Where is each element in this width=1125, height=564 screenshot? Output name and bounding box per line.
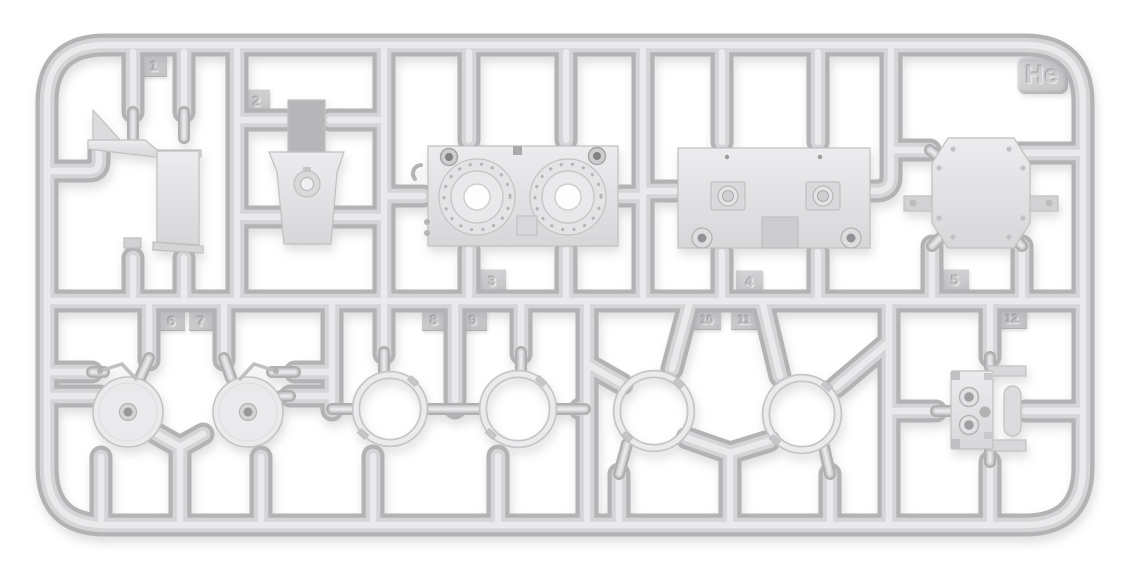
hatch-latch-left (904, 196, 932, 211)
part-10-tire-ring (617, 374, 691, 448)
hatch-ring-left (439, 159, 515, 235)
boss-left (711, 182, 745, 210)
runner-grid (47, 45, 1083, 525)
part-8-tire-ring (356, 375, 424, 443)
hatch-latch-right (1030, 196, 1058, 211)
sprue-frame-graphic (0, 0, 1125, 564)
part-9-tire-ring (483, 374, 553, 444)
part-12-bracket (951, 366, 1026, 451)
part-11-tire-ring (766, 378, 838, 450)
boss-right (806, 182, 840, 210)
hatch-ring-right (530, 159, 606, 235)
part-3-twin-hatch-plate (413, 146, 618, 246)
sprue-photo: He 1 2 3 4 5 6 7 8 9 10 11 12 (0, 0, 1125, 564)
part-4-mounting-plate (678, 148, 870, 248)
